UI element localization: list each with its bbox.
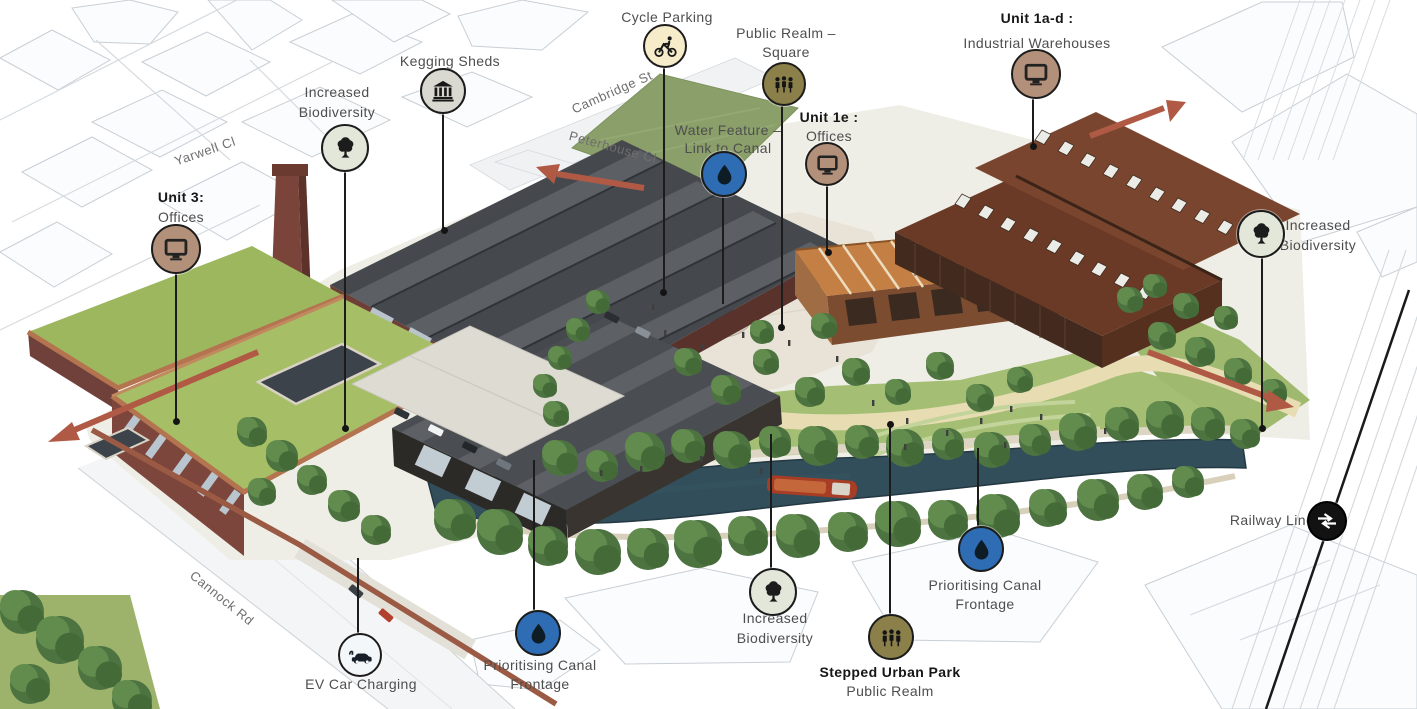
callout-anchor-dot	[887, 421, 894, 428]
callout-label: Public Realm	[846, 684, 933, 698]
callout-stem	[175, 274, 177, 420]
heritage-badge	[420, 68, 466, 114]
bicycle-icon	[652, 33, 679, 60]
masterplan-figure: Yarwell Cl Cambridge St Peterhouse Cl Ca…	[0, 0, 1417, 709]
tree-icon	[332, 135, 359, 162]
public-realm-badge	[762, 62, 806, 106]
callout-stem	[344, 172, 346, 426]
callout-stem	[442, 114, 444, 228]
computer-monitor-icon	[162, 235, 190, 263]
water-badge	[701, 151, 747, 197]
callout-label: Industrial Warehouses	[963, 36, 1110, 50]
cycle-badge	[643, 24, 687, 68]
callout-label: Unit 1e :	[800, 110, 859, 124]
callout-stem	[533, 460, 535, 610]
heritage-building-icon	[430, 78, 456, 104]
national-rail-icon	[1315, 509, 1339, 533]
railway-badge	[1307, 501, 1347, 541]
callout-label: Increased	[304, 85, 369, 99]
callout-anchor-dot	[778, 324, 785, 331]
callout-anchor-dot	[342, 425, 349, 432]
callout-label: Prioritising Canal	[928, 578, 1041, 592]
offices-badge	[1011, 49, 1061, 99]
offices-badge	[805, 142, 849, 186]
callout-label: Biodiversity	[737, 631, 813, 645]
biodiversity-badge	[749, 568, 797, 616]
callout-label: Increased	[1285, 218, 1350, 232]
callout-label: Offices	[806, 129, 852, 143]
callout-label: Offices	[158, 210, 204, 224]
callout-label: Kegging Sheds	[400, 54, 500, 68]
callout-anchor-dot	[173, 418, 180, 425]
callout-anchor-dot	[1030, 143, 1037, 150]
water-drop-icon	[712, 162, 737, 187]
water-badge	[515, 610, 561, 656]
callout-stem	[977, 448, 979, 526]
people-icon	[878, 624, 905, 651]
callout-stem	[781, 106, 783, 325]
callout-label: Stepped Urban Park	[819, 665, 960, 679]
biodiversity-badge	[1237, 210, 1285, 258]
computer-monitor-icon	[815, 152, 840, 177]
callout-anchor-dot	[660, 289, 667, 296]
ev-car-icon	[347, 642, 374, 669]
callout-label: Frontage	[955, 597, 1014, 611]
callout-stem	[770, 434, 772, 568]
callout-label: Frontage	[510, 677, 569, 691]
callout-label: Biodiversity	[1280, 238, 1356, 252]
callout-label: Biodiversity	[299, 105, 375, 119]
callout-stem	[1032, 99, 1034, 144]
callout-label: Water Feature –	[675, 123, 782, 137]
water-drop-icon	[526, 621, 551, 646]
callout-anchor-dot	[1259, 425, 1266, 432]
callout-label: Cycle Parking	[621, 10, 713, 24]
ev-charging-badge	[338, 633, 382, 677]
masterplan-render	[0, 0, 1417, 709]
callout-label: EV Car Charging	[305, 677, 417, 691]
callout-label: Prioritising Canal	[483, 658, 596, 672]
people-icon	[771, 71, 797, 97]
callout-label: Public Realm –	[736, 26, 836, 40]
water-drop-icon	[969, 537, 994, 562]
callout-label: Unit 3:	[158, 190, 204, 204]
callout-anchor-dot	[825, 249, 832, 256]
computer-monitor-icon	[1022, 60, 1050, 88]
callout-stem	[722, 197, 724, 304]
public-realm-badge	[868, 614, 914, 660]
callout-label: Railway Line	[1230, 513, 1314, 527]
callout-stem	[1261, 258, 1263, 426]
callout-stem	[357, 558, 359, 633]
callout-stem	[663, 68, 665, 290]
water-badge	[958, 526, 1004, 572]
tree-icon	[760, 579, 787, 606]
callout-stem	[826, 186, 828, 250]
callout-stem	[889, 424, 891, 614]
callout-anchor-dot	[441, 227, 448, 234]
callout-label: Square	[762, 45, 810, 59]
callout-label: Unit 1a-d :	[1001, 11, 1074, 25]
biodiversity-badge	[321, 124, 369, 172]
tree-icon	[1248, 221, 1275, 248]
offices-badge	[151, 224, 201, 274]
